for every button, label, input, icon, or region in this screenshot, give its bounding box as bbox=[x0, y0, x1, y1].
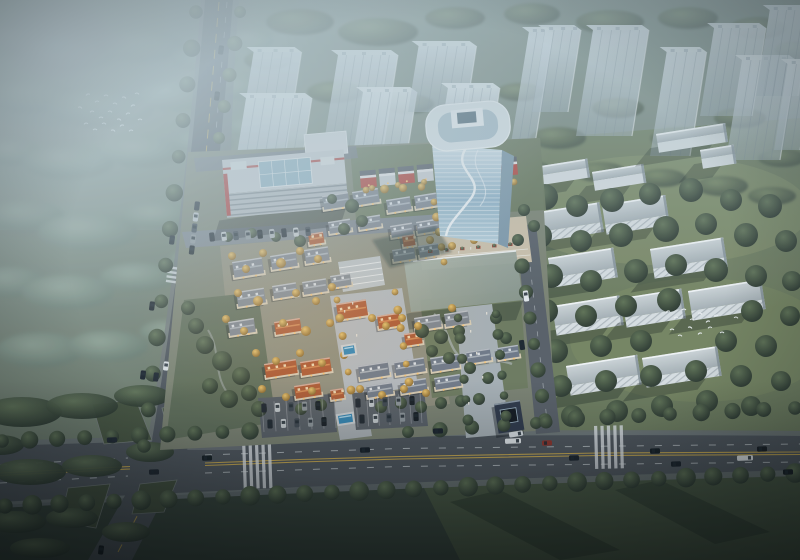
aerial-scene bbox=[0, 0, 800, 560]
atmosphere bbox=[0, 0, 800, 560]
architectural-render bbox=[0, 0, 800, 560]
bottom-shade bbox=[0, 0, 800, 560]
